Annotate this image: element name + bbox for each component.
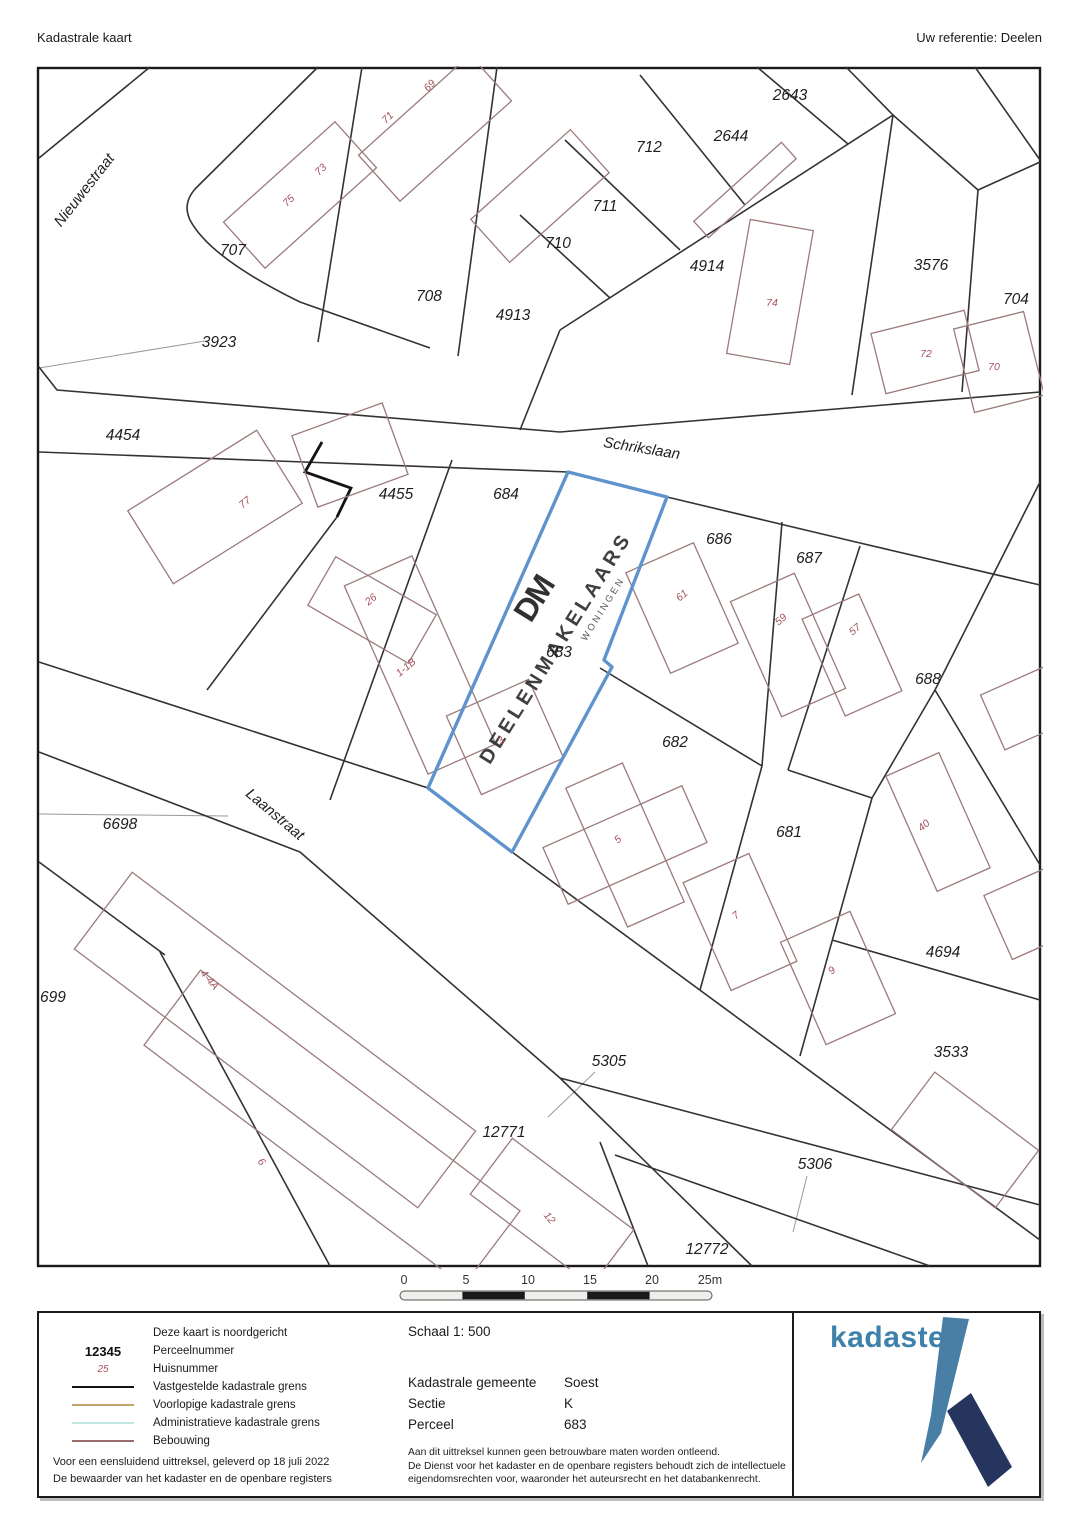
legend-label: Voorlopige kadastrale grens xyxy=(153,1399,296,1411)
parcel-label: 5305 xyxy=(592,1053,627,1070)
parcel-label: 687 xyxy=(796,550,823,567)
parcel-label: 684 xyxy=(493,486,519,503)
parcel-label: 681 xyxy=(776,824,802,841)
parcel-label: 4455 xyxy=(379,486,414,503)
parcel-label: 12772 xyxy=(685,1241,728,1258)
legend-footer-line: De bewaarder van het kadaster en de open… xyxy=(53,1471,332,1488)
legend-line-administratief-icon xyxy=(72,1422,134,1424)
parcel-label: 682 xyxy=(662,734,688,751)
legend-label: Vastgestelde kadastrale grens xyxy=(153,1381,307,1393)
parcel-label: 4913 xyxy=(496,307,531,324)
disclaimer: Aan dit uittreksel kunnen geen betrouwba… xyxy=(408,1446,786,1487)
parcel-label: 12771 xyxy=(482,1124,525,1141)
parcel-label: 3923 xyxy=(202,334,237,351)
legend-row: Administratieve kadastrale grens xyxy=(53,1414,374,1432)
legend-label: Huisnummer xyxy=(153,1363,218,1375)
parcel-label: 708 xyxy=(416,288,442,305)
scale-tick: 15 xyxy=(583,1273,597,1287)
parcel-label: 5306 xyxy=(798,1156,833,1173)
kadaster-k-icon xyxy=(885,1317,1017,1489)
parcel-label: 3576 xyxy=(914,257,949,274)
legend-row: Bebouwing xyxy=(53,1432,374,1450)
legend-label: Bebouwing xyxy=(153,1435,210,1447)
parcel-label: 4914 xyxy=(690,258,725,275)
map-info: Schaal 1: 500 Kadastrale gemeente Soest … xyxy=(374,1313,792,1496)
parcel-label: 2644 xyxy=(713,128,749,145)
reference-text: Uw referentie: Deelen xyxy=(916,30,1042,45)
scale-tick: 25m xyxy=(698,1273,722,1287)
scale-tick: 0 xyxy=(401,1273,408,1287)
info-value: Soest xyxy=(564,1373,599,1394)
scale-tick: 5 xyxy=(463,1273,470,1287)
disclaimer-line: eigendomsrechten voor, waaronder het aut… xyxy=(408,1473,786,1487)
legend-line-vastgesteld-icon xyxy=(72,1386,134,1388)
info-row: Perceel 683 xyxy=(408,1415,792,1436)
scale-bar-track xyxy=(400,1291,712,1300)
parcel-label: 686 xyxy=(706,531,732,548)
parcel-label: 711 xyxy=(593,198,618,215)
house-number: 74 xyxy=(766,297,778,309)
legend-label: Perceelnummer xyxy=(153,1345,234,1357)
info-key: Kadastrale gemeente xyxy=(408,1373,564,1394)
cadastral-map: DM DEELENMAKELAARS WONINGEN Nieuwestraat… xyxy=(36,66,1043,1269)
legend-row: Deze kaart is noordgericht xyxy=(53,1324,374,1342)
disclaimer-line: De Dienst voor het kadaster en de openba… xyxy=(408,1460,786,1474)
scale-bar-segment xyxy=(587,1292,649,1299)
legend-row: 25 Huisnummer xyxy=(53,1360,374,1378)
parcel-label: 712 xyxy=(636,139,662,156)
parcel-label: 4694 xyxy=(926,944,961,961)
legend-label: Administratieve kadastrale grens xyxy=(153,1417,320,1429)
legend-footer-line: Voor een eensluidend uittreksel, gelever… xyxy=(53,1454,332,1471)
parcel-label: 683 xyxy=(546,644,572,661)
scale-text: Schaal 1: 500 xyxy=(408,1324,792,1339)
legend-line-voorlopig-icon xyxy=(72,1404,134,1406)
house-number: 72 xyxy=(920,348,932,360)
parcel-label: 688 xyxy=(915,671,941,688)
scale-tick: 10 xyxy=(521,1273,535,1287)
legend: Deze kaart is noordgericht 12345 Perceel… xyxy=(39,1313,374,1496)
parcel-label: 710 xyxy=(545,235,571,252)
info-key: Sectie xyxy=(408,1394,564,1415)
parcel-label: 699 xyxy=(40,989,66,1006)
page-title: Kadastrale kaart xyxy=(37,30,132,45)
legend-row: Vastgestelde kadastrale grens xyxy=(53,1378,374,1396)
parcel-label: 2643 xyxy=(772,87,808,104)
info-value: 683 xyxy=(564,1415,587,1436)
map-footer-panel: Deze kaart is noordgericht 12345 Perceel… xyxy=(37,1311,1041,1498)
info-row: Sectie K xyxy=(408,1394,792,1415)
info-value: K xyxy=(564,1394,573,1415)
info-key: Perceel xyxy=(408,1415,564,1436)
info-row: Kadastrale gemeente Soest xyxy=(408,1373,792,1394)
kadastrale-kaart-page: Kadastrale kaart Uw referentie: Deelen xyxy=(0,0,1080,1528)
scale-tick: 20 xyxy=(645,1273,659,1287)
legend-symbol-huisnummer: 25 xyxy=(53,1364,153,1375)
legend-label: Deze kaart is noordgericht xyxy=(153,1327,287,1339)
parcel-label: 6698 xyxy=(103,816,138,833)
scale-bar-segment xyxy=(462,1292,524,1299)
legend-row: 12345 Perceelnummer xyxy=(53,1342,374,1360)
legend-line-bebouwing-icon xyxy=(72,1440,134,1442)
kadaster-logo: kadaster xyxy=(794,1313,1039,1496)
parcel-label: 704 xyxy=(1003,291,1029,308)
house-number: 70 xyxy=(988,361,1000,373)
parcel-label: 3533 xyxy=(934,1044,969,1061)
legend-footer: Voor een eensluidend uittreksel, gelever… xyxy=(53,1454,332,1487)
legend-symbol-perceelnummer: 12345 xyxy=(53,1344,153,1359)
disclaimer-line: Aan dit uittreksel kunnen geen betrouwba… xyxy=(408,1446,786,1460)
legend-row: Voorlopige kadastrale grens xyxy=(53,1396,374,1414)
scale-bar: 0 5 10 15 20 25m xyxy=(385,1268,730,1310)
parcel-label: 4454 xyxy=(106,427,141,444)
parcel-label: 707 xyxy=(220,242,247,259)
